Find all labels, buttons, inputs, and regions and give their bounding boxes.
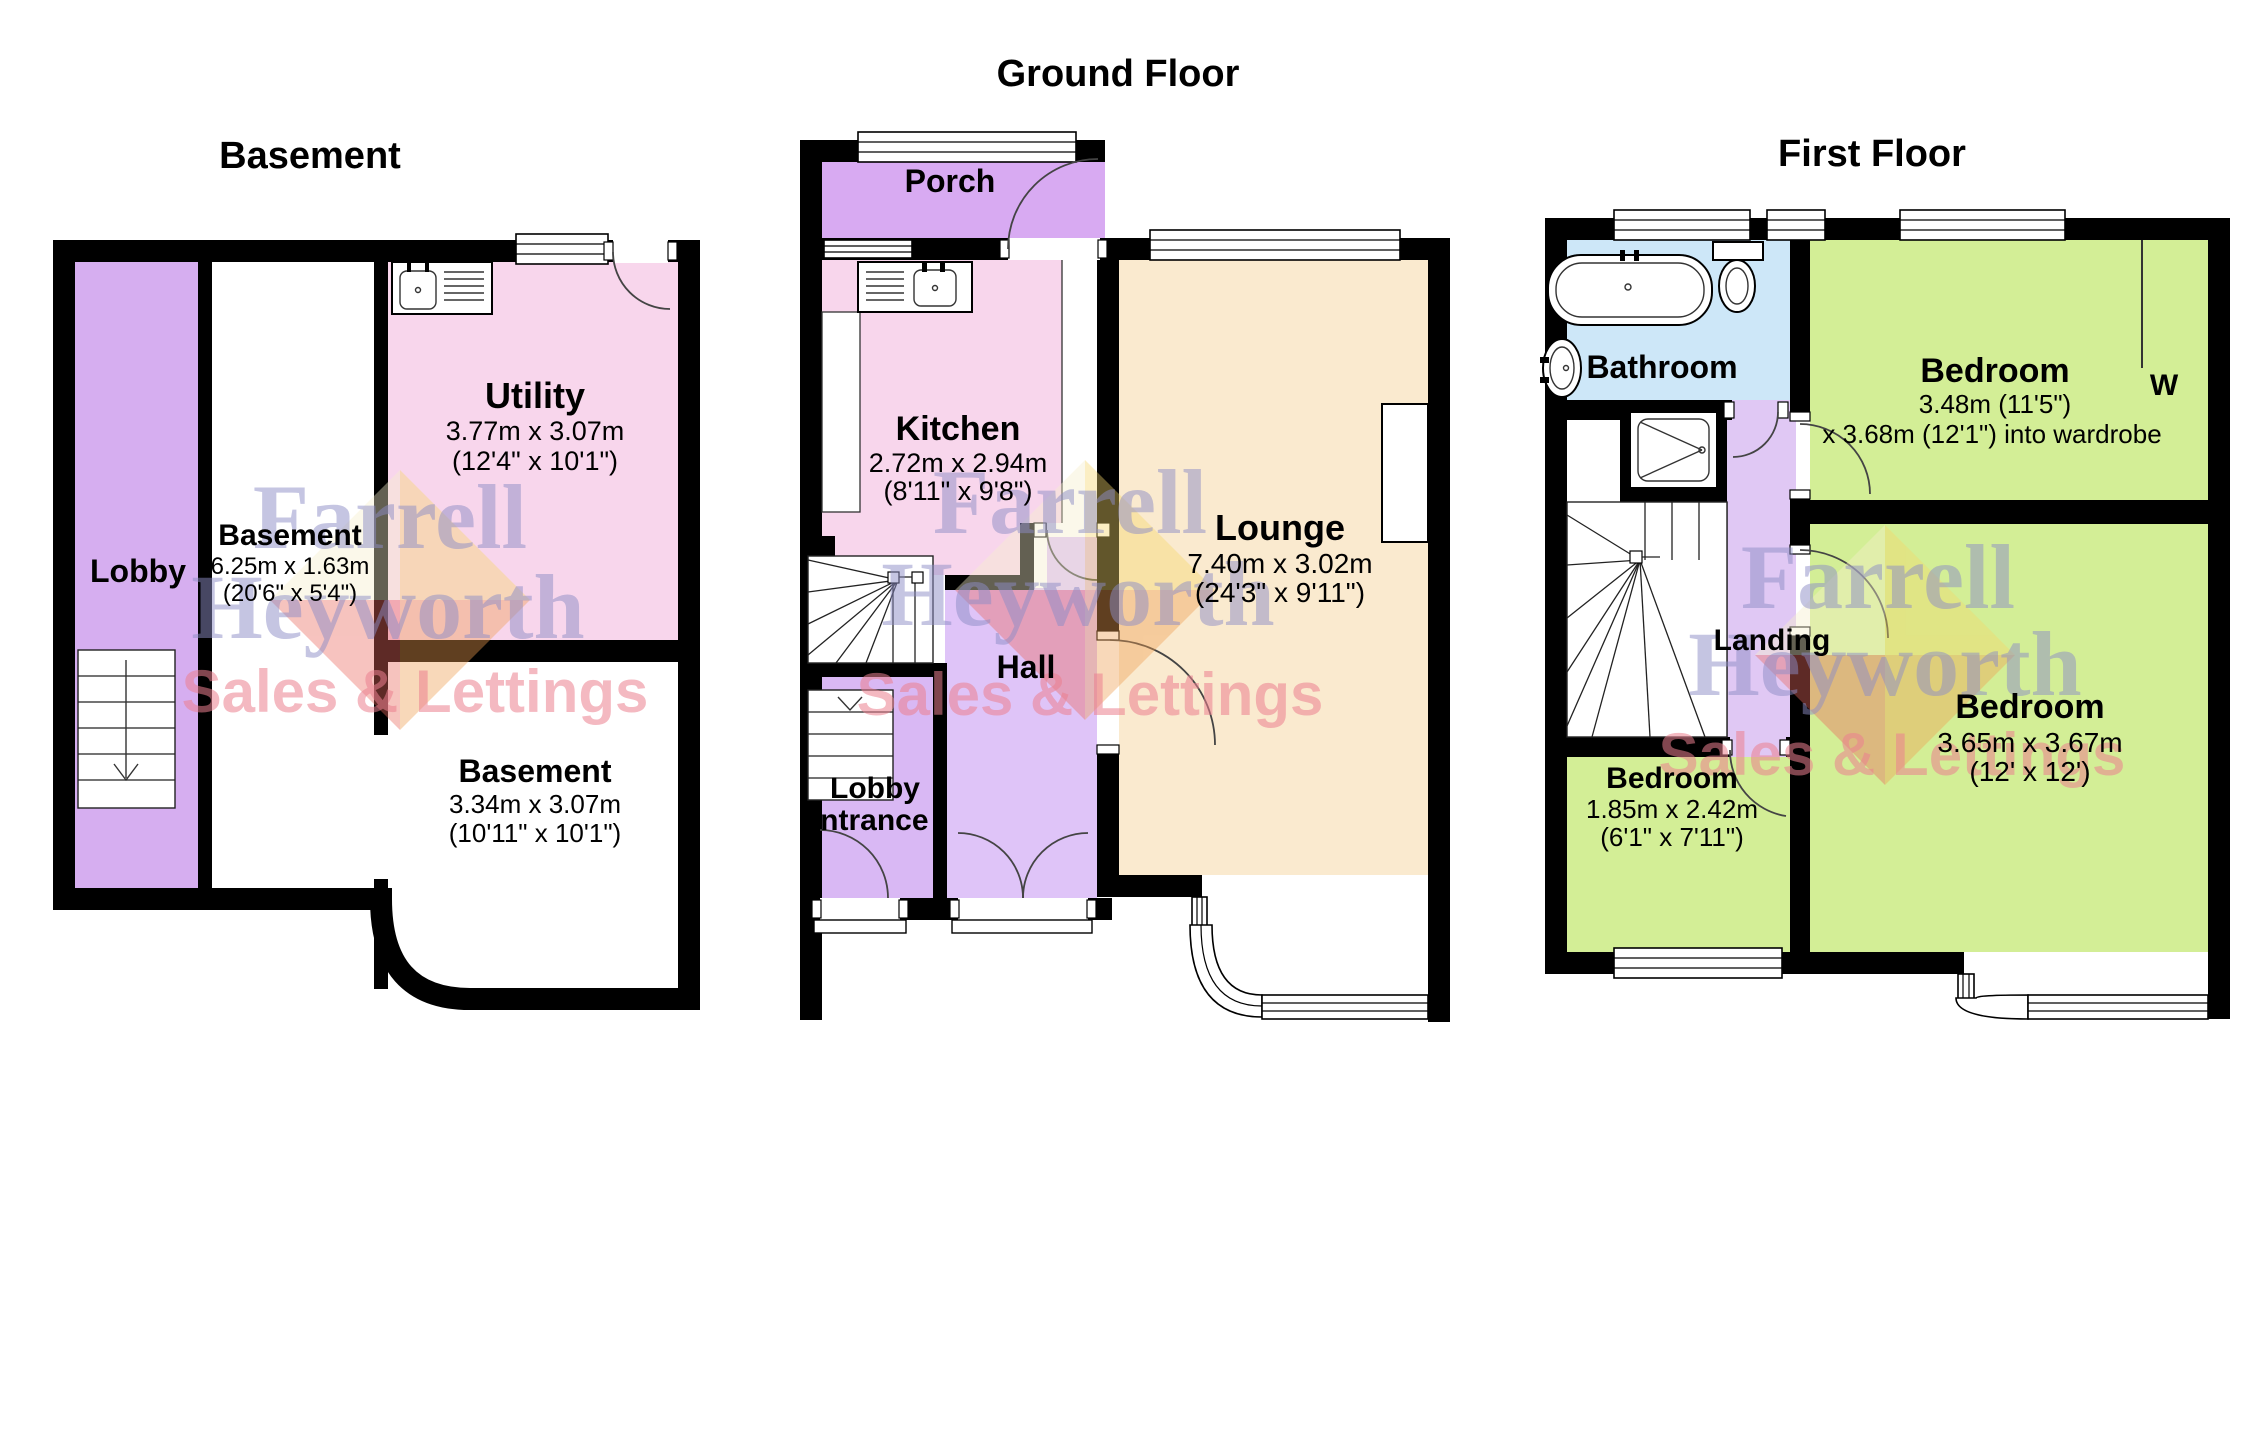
- lobby-label: Lobby: [90, 553, 186, 589]
- toilet-window: [1767, 210, 1825, 240]
- basement-lower-label: Basement: [459, 753, 612, 789]
- lobby-entrance-label-1: Lobby: [830, 772, 920, 805]
- hall-label: Hall: [997, 649, 1056, 685]
- bedroom3-dims-m: 1.85m x 2.42m: [1586, 794, 1758, 824]
- kitchen-label: Kitchen: [896, 410, 1021, 448]
- watermark-text: Sales & Lettings: [857, 661, 1324, 728]
- lounge-front-window: [1150, 230, 1400, 260]
- bedroom1-label: Bedroom: [1920, 352, 2069, 390]
- bedroom1-dims-1: 3.48m (11'5"): [1919, 389, 2071, 419]
- porch-window: [858, 132, 1076, 162]
- basement-lower-dims-m: 3.34m x 3.07m: [449, 789, 621, 819]
- bedroom2-dims-ft: (12' x 12'): [1969, 756, 2090, 787]
- bedroom2-label: Bedroom: [1955, 688, 2104, 726]
- basement-sink-icon: [392, 262, 492, 314]
- bedroom1-window: [1900, 210, 2065, 240]
- chimney-breast: [1382, 404, 1428, 542]
- basement-mid-label: Basement: [218, 519, 361, 552]
- lounge-label: Lounge: [1215, 507, 1345, 548]
- lounge-dims-ft: (24'3" x 9'11"): [1195, 577, 1365, 608]
- kitchen-sink-icon: [858, 262, 972, 312]
- ground-floor-title: Ground Floor: [997, 53, 1240, 95]
- kitchen-dims-m: 2.72m x 2.94m: [869, 448, 1048, 478]
- utility-dims-m: 3.77m x 3.07m: [446, 416, 625, 446]
- bedroom3-window: [1614, 948, 1782, 978]
- basement-mid-dims-m: 6.25m x 1.63m: [211, 553, 370, 580]
- bedroom2-bay-window: [1956, 974, 2208, 1019]
- kitchen-dims-ft: (8'11" x 9'8"): [883, 476, 1032, 506]
- first-floor-title: First Floor: [1778, 133, 1966, 175]
- floorplan-page: Farrell Heyworth Sales & Lettings Farrel…: [0, 0, 2256, 1453]
- watermark-text: Sales & Lettings: [182, 658, 649, 725]
- lobby-entrance-label-2: entrance: [803, 804, 928, 837]
- porch-label: Porch: [905, 163, 996, 199]
- bathroom-window: [1614, 210, 1750, 240]
- bedroom3-dims-ft: (6'1" x 7'11"): [1600, 822, 1744, 852]
- shower-icon: [1630, 412, 1717, 488]
- basement-lower-dims-ft: (10'11" x 10'1"): [449, 818, 621, 848]
- lounge-bay-window: [1190, 897, 1428, 1019]
- utility-label: Utility: [485, 375, 585, 416]
- basement-title: Basement: [219, 135, 401, 177]
- bathtub-icon: [1548, 250, 1712, 325]
- basement-stairs-icon: [78, 650, 175, 808]
- bedroom1-dims-2: x 3.68m (12'1") into wardrobe: [1822, 419, 2161, 449]
- basement-utility-window: [516, 234, 608, 264]
- lounge-dims-m: 7.40m x 3.02m: [1187, 548, 1372, 579]
- kitchen-recess: [822, 312, 860, 512]
- bathroom-label: Bathroom: [1586, 349, 1737, 385]
- bedroom2-dims-m: 3.65m x 3.67m: [1937, 727, 2122, 758]
- basement-mid-dims-ft: (20'6" x 5'4"): [223, 580, 357, 607]
- wardrobe-label: W: [2150, 369, 2179, 402]
- floorplan-canvas: Farrell Heyworth Sales & Lettings Farrel…: [0, 0, 2256, 1453]
- landing-label: Landing: [1714, 624, 1831, 657]
- porch-internal-window: [824, 240, 912, 258]
- bedroom3-label: Bedroom: [1606, 762, 1738, 795]
- utility-dims-ft: (12'4" x 10'1"): [452, 446, 618, 476]
